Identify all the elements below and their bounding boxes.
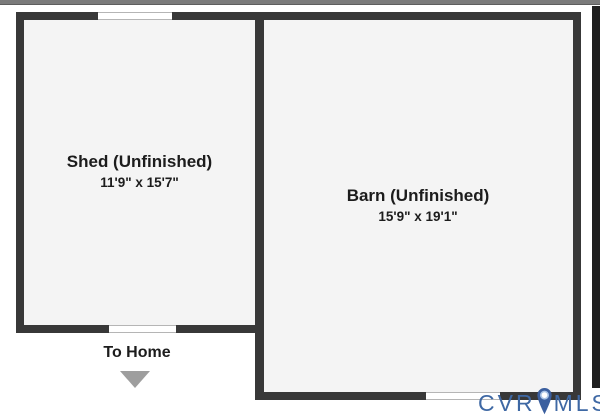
down-arrow-icon — [120, 371, 150, 388]
right-edge-strip — [592, 6, 600, 388]
shed-name: Shed (Unfinished) — [24, 152, 255, 172]
window-shed-top — [98, 12, 172, 20]
floorplan-canvas: Shed (Unfinished) 11'9" x 15'7" Barn (Un… — [0, 0, 600, 420]
wall-shed-left — [16, 12, 24, 333]
brand-logo-prefix: CVR — [478, 390, 536, 416]
top-gray-bar — [0, 0, 600, 5]
window-shed-bottom — [109, 325, 176, 333]
brand-logo-suffix: MLS — [554, 390, 600, 416]
shed-dimensions: 11'9" x 15'7" — [24, 174, 255, 191]
to-home-label: To Home — [37, 344, 237, 362]
barn-dimensions: 15'9" x 19'1" — [263, 208, 573, 225]
map-pin-icon — [537, 387, 552, 416]
brand-logo: CVR MLS — [478, 390, 600, 416]
shed-label: Shed (Unfinished) 11'9" x 15'7" — [24, 152, 255, 191]
barn-label: Barn (Unfinished) 15'9" x 19'1" — [263, 186, 573, 225]
barn-name: Barn (Unfinished) — [263, 186, 573, 206]
wall-barn-right — [573, 12, 581, 400]
